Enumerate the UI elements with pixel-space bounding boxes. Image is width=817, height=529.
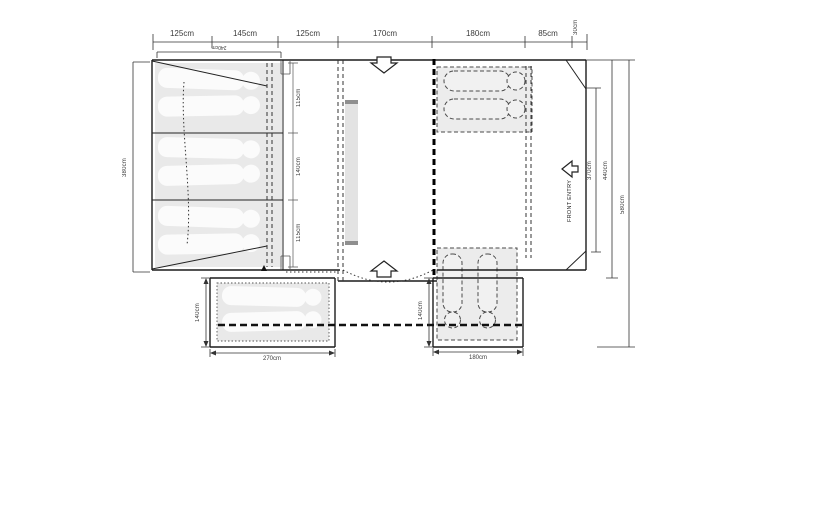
ruler-label-6: 85cm xyxy=(528,29,568,39)
dashed-sleeping-bag xyxy=(443,254,462,328)
left-height-bracket xyxy=(133,62,150,272)
dashed-sleeping-bag xyxy=(444,99,525,119)
right-outer-dim-label: 580cm xyxy=(620,188,629,220)
pole-cap-bottom xyxy=(345,241,358,245)
front-entry-label: FRONT ENTRY xyxy=(565,178,574,224)
pole-brackets xyxy=(281,61,290,269)
floorplan-linework xyxy=(0,0,817,529)
tent-floorplan: 125cm 145cm 125cm 170cm 180cm 85cm 30cm … xyxy=(0,0,817,529)
front-entry-arrow-icon xyxy=(562,161,578,177)
left-annex-width-label: 270cm xyxy=(252,356,292,363)
bottom-entry-arrow-icon xyxy=(371,261,397,277)
pole-cap-top xyxy=(345,100,358,104)
dashed-sleeping-bag xyxy=(478,254,497,328)
ruler-label-2: 145cm xyxy=(225,29,265,39)
right-mid-dim-label: 440cm xyxy=(603,154,612,186)
ruler-label-4: 170cm xyxy=(365,29,405,39)
dim-line-580 xyxy=(597,60,635,347)
dashed-sleeping-bag xyxy=(444,71,525,91)
right-inner-dim-label: 370cm xyxy=(587,154,596,186)
compartment-label-1: 115cm xyxy=(296,82,305,114)
center-pole-table xyxy=(345,102,358,243)
ruler-label-3: 125cm xyxy=(288,29,328,39)
bedroom-width-label: 240cm xyxy=(204,44,234,50)
right-annex-width-label: 180cm xyxy=(458,355,498,362)
ruler-label-5: 180cm xyxy=(458,29,498,39)
compartment-label-3: 115cm xyxy=(296,217,305,249)
right-annex-depth-label: 140cm xyxy=(418,294,427,326)
left-height-label: 380cm xyxy=(122,150,131,184)
ruler-end-label: 30cm xyxy=(573,14,582,40)
left-annex-depth-label: 140cm xyxy=(195,296,204,328)
bedroom-width-bracket xyxy=(157,52,281,58)
ruler-label-1: 125cm xyxy=(162,29,202,39)
compartment-label-2: 140cm xyxy=(296,150,305,182)
